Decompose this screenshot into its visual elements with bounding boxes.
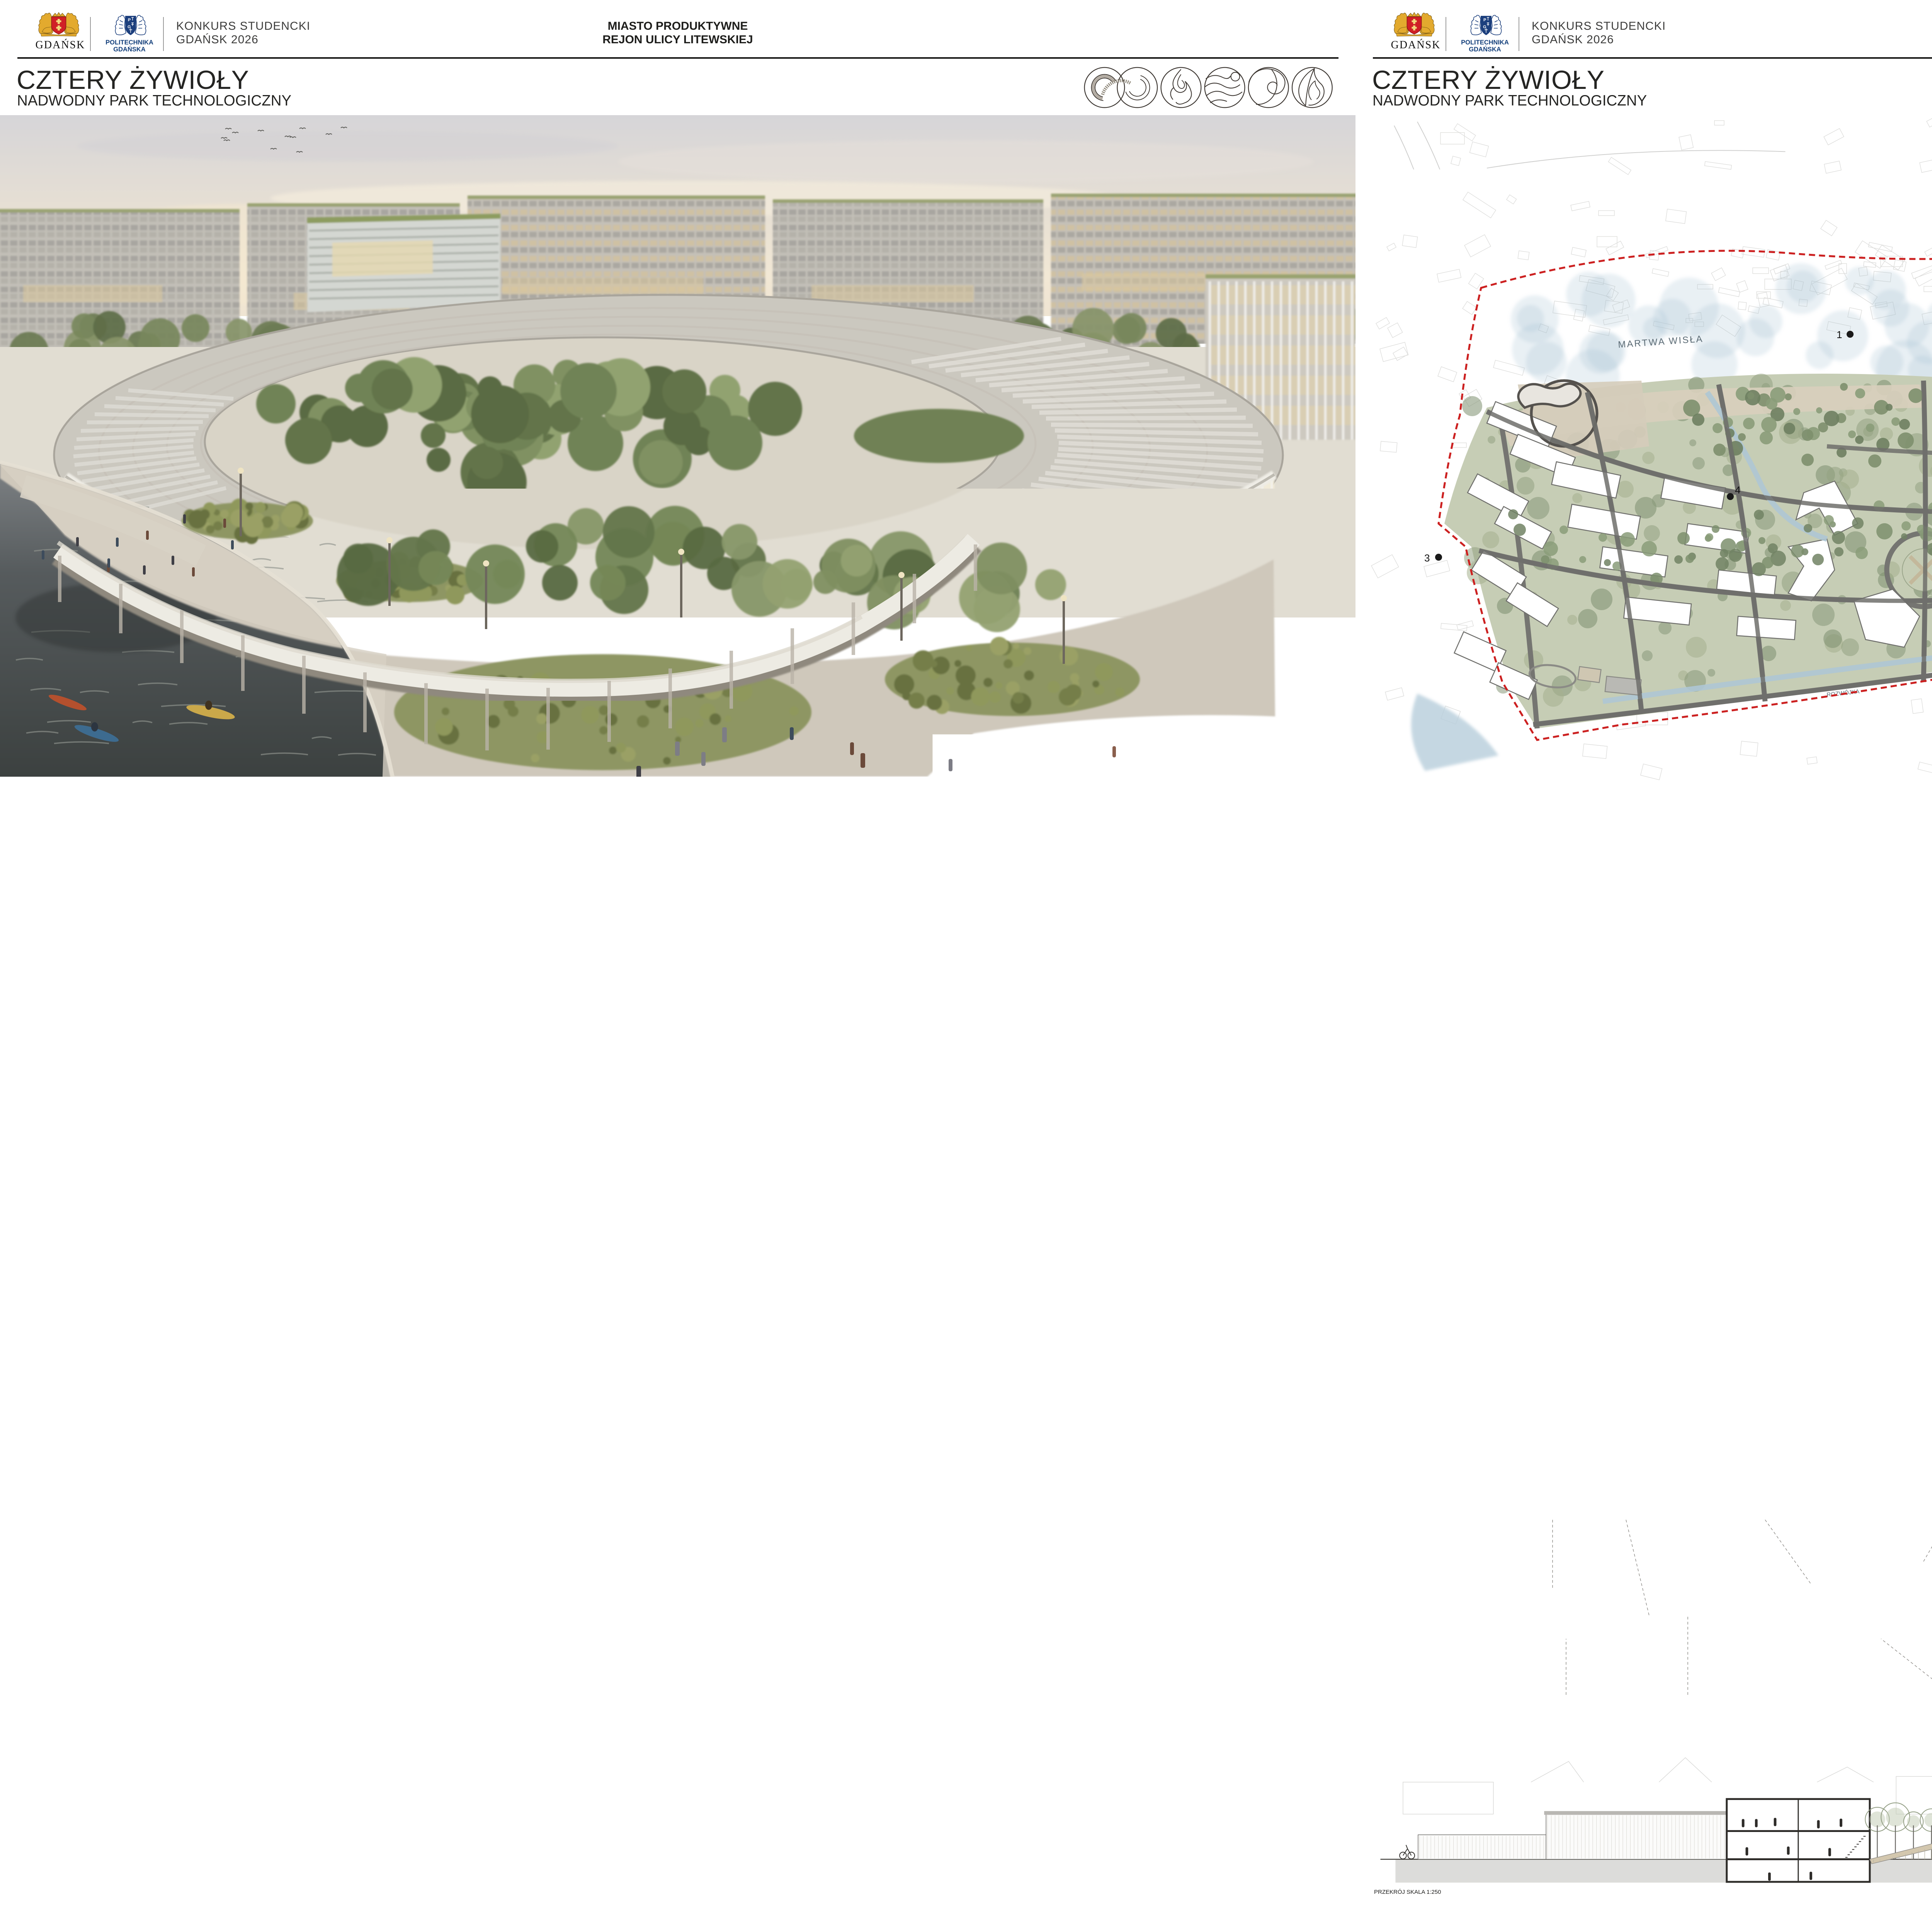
svg-text:PRODUKCYJNE: PRODUKCYJNE — [61, 807, 91, 811]
svg-text:45,39: 45,39 — [923, 1802, 933, 1806]
svg-text:46: 46 — [837, 1883, 841, 1887]
svg-text:monitoring: monitoring — [48, 863, 62, 867]
svg-text:krótkoterminowe: krótkoterminowe — [177, 857, 199, 861]
svg-text:85,68: 85,68 — [813, 1802, 823, 1806]
svg-text:chłodnia: chłodnia — [865, 1876, 880, 1880]
svg-text:11: 11 — [726, 1817, 731, 1821]
svg-text:sala odpoczynku: sala odpoczynku — [755, 1802, 784, 1806]
svg-text:27,67: 27,67 — [923, 1809, 933, 1813]
svg-text:14: 14 — [128, 1380, 134, 1387]
svg-text:G: G — [128, 25, 131, 29]
svg-text:Nazwa strefy: Nazwa strefy — [775, 1735, 798, 1739]
svg-text:zmywalnia: zmywalnia — [865, 1817, 883, 1821]
svg-text:20: 20 — [726, 1883, 731, 1887]
svg-text:badania: badania — [50, 853, 61, 856]
svg-text:wydajności: wydajności — [69, 831, 83, 834]
svg-text:N: N — [1597, 806, 1601, 812]
svg-text:23: 23 — [618, 1380, 625, 1387]
svg-text:Rozdzielnia kelnerska: Rozdzielnia kelnerska — [865, 1809, 903, 1813]
svg-text:G: G — [128, 983, 131, 988]
svg-text:34: 34 — [1005, 1612, 1012, 1619]
svg-text:25: 25 — [837, 1750, 841, 1754]
svg-text:kontrast wobec: kontrast wobec — [1296, 1213, 1325, 1218]
svg-text:10: 10 — [726, 1809, 731, 1813]
svg-text:37: 37 — [837, 1846, 841, 1851]
svg-text:10,17: 10,17 — [923, 1765, 933, 1769]
svg-text:243,53: 243,53 — [813, 1854, 825, 1858]
svg-text:ewolucja wiedzy,: ewolucja wiedzy, — [1294, 1253, 1326, 1257]
svg-text:29: 29 — [788, 1295, 795, 1302]
svg-text:nauka wszystkimi: nauka wszystkimi — [1201, 1139, 1235, 1144]
svg-text:3: 3 — [572, 1604, 575, 1611]
svg-text:laboratorium pokazowe: laboratorium pokazowe — [755, 1787, 795, 1791]
svg-text:127,70: 127,70 — [813, 1765, 825, 1769]
svg-text:6 179,02 m²: 6 179,02 m² — [923, 1905, 944, 1909]
svg-text:ŚWIATŁO: ŚWIATŁO — [1151, 1126, 1175, 1132]
svg-text:regeneracja i: regeneracja i — [180, 868, 197, 871]
svg-text:łazienki: łazienki — [755, 1846, 768, 1851]
svg-text:nauki i: nauki i — [1267, 1163, 1279, 1168]
svg-text:procesów i: procesów i — [1153, 1148, 1173, 1153]
svg-text:18: 18 — [765, 1519, 772, 1526]
svg-text:1: 1 — [421, 1481, 425, 1487]
svg-text:łazienki: łazienki — [865, 1890, 878, 1895]
svg-text:89,32: 89,32 — [813, 1883, 823, 1887]
svg-text:laboratorium pokazowe: laboratorium pokazowe — [755, 1824, 795, 1828]
svg-text:7: 7 — [726, 1787, 729, 1791]
svg-text:17: 17 — [804, 1458, 811, 1464]
svg-text:przystań kajakowa,: przystań kajakowa, — [173, 893, 198, 897]
svg-text:ETER: ETER — [1208, 1200, 1232, 1209]
svg-text:I USŁUGI: I USŁUGI — [180, 847, 196, 852]
svg-text:127,67: 127,67 — [813, 1757, 825, 1762]
svg-text:I FORMA: I FORMA — [1299, 1192, 1322, 1197]
svg-text:39: 39 — [951, 1620, 957, 1626]
svg-text:kuchnia: kuchnia — [865, 1802, 879, 1806]
svg-text:481,41: 481,41 — [923, 1898, 935, 1902]
svg-text:127,75: 127,75 — [813, 1795, 825, 1799]
svg-text:KOMINIKACJA: KOMINIKACJA — [1254, 1126, 1291, 1132]
svg-text:kwintesencja: kwintesencja — [1117, 1251, 1142, 1256]
svg-text:recepcja: recepcja — [755, 1868, 770, 1873]
svg-text:przenikanie: przenikanie — [1152, 1158, 1174, 1163]
svg-text:34: 34 — [837, 1824, 841, 1828]
svg-text:zmian: zmian — [1304, 1263, 1315, 1267]
svg-text:31: 31 — [1005, 1581, 1012, 1588]
svg-text:szatnia pracownicza: szatnia pracownicza — [755, 1898, 790, 1902]
svg-text:16: 16 — [137, 1230, 144, 1236]
svg-text:wystawa czasowa: wystawa czasowa — [755, 1831, 786, 1835]
svg-text:społeczeństwa: społeczeństwa — [1259, 1169, 1287, 1173]
svg-text:4: 4 — [603, 1635, 606, 1642]
svg-text:restauracja: restauracja — [865, 1898, 884, 1902]
svg-text:pokój socjalny: pokój socjalny — [755, 1890, 779, 1895]
svg-text:P: P — [128, 18, 131, 22]
svg-text:prototypów,: prototypów, — [55, 902, 70, 905]
svg-text:32: 32 — [837, 1809, 841, 1813]
svg-text:12: 12 — [726, 1824, 731, 1828]
svg-text:13: 13 — [182, 1411, 189, 1418]
svg-text:G: G — [1483, 25, 1486, 29]
svg-text:127,75: 127,75 — [813, 1817, 825, 1821]
svg-text:35: 35 — [837, 1831, 841, 1835]
svg-text:1: 1 — [1837, 329, 1842, 340]
svg-text:48: 48 — [935, 1597, 942, 1603]
svg-text:Powierzchnia: Powierzchnia — [922, 1735, 945, 1739]
svg-text:laboratorium pokazowe: laboratorium pokazowe — [755, 1817, 795, 1821]
svg-text:laboratorium pokazowe: laboratorium pokazowe — [755, 1795, 795, 1799]
svg-text:4: 4 — [726, 1765, 729, 1769]
svg-text:5: 5 — [367, 1662, 371, 1669]
svg-text:507,69: 507,69 — [813, 1831, 825, 1835]
svg-text:127,74: 127,74 — [813, 1787, 825, 1791]
svg-text:laboratorium pokazowe: laboratorium pokazowe — [755, 1757, 795, 1762]
svg-text:klatka schodowa: klatka schodowa — [865, 1795, 894, 1799]
svg-text:27: 27 — [734, 1295, 741, 1302]
svg-text:usługi lokalne,: usługi lokalne, — [179, 864, 197, 868]
svg-text:128,40: 128,40 — [813, 1824, 825, 1828]
svg-text:pom. socjalne: pom. socjalne — [865, 1839, 889, 1843]
svg-text:P: P — [128, 976, 131, 981]
svg-text:wc + natryski męskie: wc + natryski męskie — [865, 1854, 901, 1858]
svg-text:3: 3 — [1424, 552, 1430, 564]
svg-text:prezentacja: prezentacja — [1262, 1143, 1284, 1148]
svg-text:39: 39 — [837, 1861, 841, 1865]
svg-text:28,86: 28,86 — [813, 1868, 823, 1873]
svg-text:P: P — [1483, 976, 1486, 981]
svg-text:PRODUKTYWNE: PRODUKTYWNE — [100, 874, 145, 881]
svg-text:system wiedzy: system wiedzy — [1115, 1261, 1143, 1266]
svg-text:zakwaterowanie,: zakwaterowanie, — [177, 861, 199, 864]
svg-text:magazyn: magazyn — [755, 1854, 771, 1858]
svg-text:laboratorium pokazowe: laboratorium pokazowe — [755, 1750, 795, 1754]
svg-text:28: 28 — [837, 1772, 841, 1777]
svg-text:8: 8 — [270, 1624, 274, 1630]
svg-text:33: 33 — [974, 1566, 981, 1572]
svg-text:pok. socjalny: pok. socjalny — [865, 1765, 888, 1769]
svg-text:oświągnięć,: oświągnięć, — [1262, 1148, 1284, 1153]
svg-text:INTEGRACJA ŻYWIOŁÓW: INTEGRACJA ŻYWIOŁÓW — [1096, 1271, 1162, 1276]
svg-text:53,62: 53,62 — [923, 1787, 933, 1791]
svg-text:wspinaczkowa,: wspinaczkowa, — [176, 900, 196, 904]
svg-text:technologii,: technologii, — [69, 817, 83, 820]
svg-text:transparentność: transparentność — [1148, 1143, 1179, 1148]
svg-text:14: 14 — [726, 1839, 731, 1843]
svg-text:zaplecze kuchenne: zaplecze kuchenne — [865, 1757, 898, 1762]
svg-text:43: 43 — [916, 1666, 923, 1673]
svg-text:46: 46 — [951, 1682, 957, 1688]
svg-text:30: 30 — [837, 1795, 841, 1799]
svg-text:czterech żywiołów,: czterech żywiołów, — [1111, 1246, 1146, 1251]
svg-text:tłumaczenie: tłumaczenie — [1117, 1196, 1140, 1200]
svg-text:40: 40 — [837, 1868, 841, 1873]
svg-text:6: 6 — [726, 1780, 729, 1784]
svg-text:26: 26 — [723, 1318, 730, 1325]
svg-text:5: 5 — [726, 1772, 729, 1777]
svg-text:19: 19 — [726, 1876, 731, 1880]
svg-text:37: 37 — [981, 1631, 988, 1638]
svg-text:analiza procesów,: analiza procesów, — [44, 860, 67, 863]
svg-text:2: 2 — [553, 1543, 556, 1549]
svg-text:21: 21 — [726, 1890, 731, 1895]
svg-text:handel: handel — [116, 810, 125, 813]
svg-text:hala sportowa: hala sportowa — [177, 907, 195, 911]
svg-text:19: 19 — [750, 1550, 757, 1557]
svg-text:warsztaty: warsztaty — [56, 905, 69, 908]
svg-text:Powierzchnia: Powierzchnia — [812, 1735, 835, 1739]
svg-text:5,35: 5,35 — [923, 1868, 931, 1873]
svg-text:komponentów: komponentów — [111, 820, 129, 823]
svg-text:P: P — [1483, 18, 1486, 22]
svg-text:45: 45 — [850, 1666, 857, 1673]
svg-text:adaptacja i: adaptacja i — [1299, 1243, 1320, 1247]
svg-text:kawiarnia: kawiarnia — [865, 1743, 882, 1747]
svg-text:29: 29 — [837, 1787, 841, 1791]
svg-text:interaktywne,: interaktywne, — [54, 895, 71, 898]
svg-text:9: 9 — [301, 1639, 305, 1646]
svg-text:20: 20 — [703, 1531, 710, 1538]
svg-text:14,87: 14,87 — [923, 1750, 933, 1754]
svg-text:10,82: 10,82 — [923, 1854, 933, 1858]
svg-text:9: 9 — [726, 1802, 729, 1806]
svg-text:195,34: 195,34 — [923, 1743, 935, 1747]
svg-text:4: 4 — [1735, 484, 1740, 496]
svg-text:aktualizacja,: aktualizacja, — [1298, 1248, 1322, 1252]
svg-text:recepcja: recepcja — [755, 1876, 770, 1880]
svg-text:łazienki: łazienki — [755, 1809, 768, 1813]
svg-text:32,73: 32,73 — [923, 1883, 933, 1887]
svg-text:zanieczyszczeń: zanieczyszczeń — [45, 867, 65, 870]
svg-text:mag. prod. sypkie: mag. prod. sypkie — [865, 1868, 896, 1873]
svg-text:13: 13 — [726, 1831, 731, 1835]
svg-text:1: 1 — [726, 1743, 729, 1747]
svg-text:64,81: 64,81 — [813, 1839, 823, 1843]
svg-text:płynna, obła: płynna, obła — [1299, 1203, 1322, 1208]
svg-text:11: 11 — [205, 1519, 211, 1526]
svg-text:MAGAZYNY: MAGAZYNY — [109, 793, 131, 797]
svg-text:18: 18 — [726, 1868, 731, 1873]
svg-text:5,99: 5,99 — [923, 1831, 931, 1835]
svg-text:2: 2 — [726, 1750, 729, 1754]
svg-text:41: 41 — [837, 1876, 841, 1880]
svg-text:środowiskowe,: środowiskowe, — [46, 856, 65, 860]
svg-text:EKSPERYMENTARIUM: EKSPERYMENTARIUM — [43, 915, 82, 919]
svg-text:64,34: 64,34 — [923, 1795, 933, 1799]
svg-text:44,30: 44,30 — [813, 1890, 823, 1895]
svg-text:łazienka pracownicza: łazienka pracownicza — [865, 1772, 902, 1777]
svg-text:36: 36 — [978, 1597, 985, 1603]
svg-text:doświadczenia: doświadczenia — [1114, 1216, 1143, 1220]
svg-text:innowacji,: innowacji, — [158, 820, 171, 824]
svg-text:odpoczynek: odpoczynek — [180, 871, 196, 875]
svg-text:prezentacja: prezentacja — [55, 898, 71, 902]
svg-text:wiedzy, dialog: wiedzy, dialog — [1259, 1158, 1286, 1163]
svg-text:sprawdzanie: sprawdzanie — [68, 827, 84, 831]
svg-text:innowacjami,: innowacjami, — [112, 813, 129, 816]
svg-text:29: 29 — [837, 1780, 841, 1784]
svg-text:ZMYSŁOWE: ZMYSŁOWE — [1202, 1118, 1233, 1123]
svg-text:17: 17 — [726, 1861, 731, 1865]
svg-text:edukacyjne: edukacyjne — [55, 908, 70, 912]
svg-text:sklep: sklep — [755, 1905, 764, 1909]
svg-text:23: 23 — [726, 1905, 731, 1909]
svg-text:Park 4 Żywioły,: Park 4 Żywioły, — [176, 890, 196, 893]
svg-text:28: 28 — [757, 1280, 764, 1286]
svg-text:31,88: 31,88 — [923, 1890, 933, 1895]
svg-text:27: 27 — [837, 1765, 841, 1769]
svg-text:połączenie: połączenie — [1119, 1241, 1139, 1246]
svg-text:szatnia: szatnia — [755, 1883, 767, 1887]
svg-text:44: 44 — [885, 1651, 892, 1657]
svg-text:15: 15 — [726, 1846, 731, 1851]
svg-text:procesów, transfer: procesów, transfer — [1111, 1206, 1146, 1210]
svg-text:mag. na napoje: mag. na napoje — [865, 1861, 892, 1865]
svg-text:LABORATORIA: LABORATORIA — [41, 846, 69, 850]
svg-text:Numer strefy: Numer strefy — [726, 1735, 748, 1739]
svg-text:40,75: 40,75 — [813, 1809, 823, 1813]
svg-text:SPORT I REKREACJA: SPORT I REKREACJA — [167, 913, 205, 918]
svg-text:złożonych: złożonych — [1119, 1201, 1138, 1205]
svg-text:toaleta: toaleta — [865, 1787, 877, 1791]
svg-text:26: 26 — [837, 1757, 841, 1762]
svg-text:Zestawienie powierzchni: Zestawienie powierzchni — [866, 1727, 912, 1732]
svg-text:10,77: 10,77 — [923, 1846, 933, 1851]
svg-text:coworking: coworking — [158, 827, 171, 831]
svg-text:dystrybucja: dystrybucja — [113, 803, 128, 806]
svg-text:gastronomia,: gastronomia, — [180, 854, 196, 857]
svg-text:sieciowanie firm,: sieciowanie firm, — [154, 824, 175, 827]
svg-text:12: 12 — [174, 1504, 181, 1510]
svg-text:90,22: 90,22 — [813, 1772, 823, 1777]
svg-text:Z MIASTEM: Z MIASTEM — [1258, 1132, 1287, 1138]
svg-text:16: 16 — [726, 1854, 731, 1858]
svg-text:21: 21 — [676, 1585, 683, 1592]
svg-text:6,42: 6,42 — [923, 1824, 931, 1828]
svg-text:Nazwa strefy: Nazwa strefy — [885, 1735, 908, 1739]
svg-text:ścieżki rowerowe,: ścieżki rowerowe, — [174, 904, 197, 907]
svg-text:9,90: 9,90 — [923, 1772, 931, 1777]
svg-text:rozwiązań,: rozwiązań, — [69, 824, 83, 827]
svg-text:logistyka,: logistyka, — [114, 799, 126, 803]
svg-text:sala odpoczynku: sala odpoczynku — [755, 1772, 784, 1777]
svg-text:24: 24 — [665, 1357, 672, 1364]
svg-text:ścianka: ścianka — [181, 897, 191, 900]
svg-text:restauracja: restauracja — [865, 1780, 884, 1784]
svg-text:wystawa główna: wystawa główna — [755, 1743, 783, 1747]
svg-text:36: 36 — [837, 1839, 841, 1843]
svg-text:37,13: 37,13 — [813, 1876, 823, 1880]
svg-text:COWORKING: COWORKING — [152, 807, 177, 811]
svg-text:15: 15 — [128, 1357, 134, 1364]
svg-text:54,86: 54,86 — [813, 1846, 823, 1851]
svg-text:6: 6 — [410, 1674, 413, 1681]
svg-text:wc + natryski damskie: wc + natryski damskie — [865, 1846, 903, 1851]
svg-text:zmysłami: zmysłami — [1209, 1144, 1227, 1149]
svg-text:geometria bryły,: geometria bryły, — [1296, 1208, 1325, 1213]
svg-text:nauki i: nauki i — [1122, 1211, 1134, 1215]
svg-text:40: 40 — [920, 1612, 927, 1619]
svg-text:Numer strefy: Numer strefy — [836, 1735, 858, 1739]
svg-text:36,27: 36,27 — [813, 1780, 823, 1784]
svg-text:22: 22 — [657, 1558, 664, 1565]
svg-text:Zestawienie powierzchni: Zestawienie powierzchni — [756, 1727, 802, 1732]
svg-text:24: 24 — [837, 1743, 841, 1747]
svg-text:ekspozycje: ekspozycje — [56, 891, 70, 895]
svg-text:CZAS I ROZWÓJ: CZAS I ROZWÓJ — [1289, 1272, 1331, 1278]
svg-text:klatka schodowa: klatka schodowa — [865, 1883, 894, 1887]
svg-text:122,66: 122,66 — [813, 1905, 825, 1909]
svg-text:proces ciągłych: proces ciągłych — [1295, 1258, 1325, 1262]
svg-text:17: 17 — [475, 1419, 482, 1425]
svg-text:MIASTO: MIASTO — [111, 867, 133, 874]
svg-text:światła: światła — [1156, 1163, 1170, 1168]
svg-text:architektury,: architektury, — [1151, 1153, 1174, 1158]
svg-text:1 014,95: 1 014,95 — [813, 1861, 828, 1865]
svg-text:48: 48 — [927, 1488, 934, 1495]
svg-text:optymalizacja: optymalizacja — [67, 820, 85, 824]
svg-text:41: 41 — [889, 1620, 896, 1626]
svg-text:1 689,19: 1 689,19 — [813, 1743, 828, 1747]
svg-text:10: 10 — [236, 1612, 243, 1619]
svg-text:inkubacja: inkubacja — [158, 817, 171, 820]
svg-text:11,40: 11,40 — [923, 1876, 933, 1880]
svg-text:0,01: 0,01 — [923, 1780, 931, 1784]
svg-text:21,26: 21,26 — [923, 1757, 933, 1762]
svg-text:procesów, wspólny: procesów, wspólny — [1111, 1256, 1147, 1261]
svg-text:przemysłowej: przemysłowej — [1298, 1223, 1324, 1228]
svg-text:laboratorium pokazowe: laboratorium pokazowe — [755, 1765, 795, 1769]
svg-text:7: 7 — [332, 1651, 336, 1657]
svg-text:dostępność: dostępność — [1262, 1153, 1284, 1158]
svg-text:obieralnia: obieralnia — [865, 1824, 882, 1828]
svg-text:33: 33 — [837, 1817, 841, 1821]
svg-text:składowanie: składowanie — [112, 816, 128, 820]
svg-text:31: 31 — [837, 1802, 841, 1806]
svg-text:klatka schodowa: klatka schodowa — [755, 1780, 784, 1784]
svg-text:127,62: 127,62 — [813, 1750, 825, 1754]
svg-text:5,35: 5,35 — [923, 1861, 931, 1865]
svg-text:doświadczenie,: doświadczenie, — [1203, 1134, 1232, 1139]
svg-text:30: 30 — [819, 1326, 826, 1333]
svg-text:10,38: 10,38 — [923, 1817, 933, 1821]
svg-text:3: 3 — [726, 1757, 729, 1762]
svg-text:prototympowanie: prototympowanie — [65, 813, 87, 817]
svg-text:MEDIUM POZNANIA: MEDIUM POZNANIA — [1103, 1184, 1154, 1190]
svg-text:48: 48 — [837, 1898, 841, 1902]
svg-text:25: 25 — [696, 1334, 702, 1340]
svg-text:surowej struktury: surowej struktury — [1294, 1218, 1327, 1223]
svg-text:DOŚWIADCZENIA: DOŚWIADCZENIA — [1195, 1112, 1241, 1118]
svg-text:mag. warzyw: mag. warzyw — [865, 1831, 888, 1835]
svg-text:8: 8 — [726, 1795, 729, 1799]
svg-text:bar: bar — [865, 1750, 871, 1754]
svg-text:biura startapów,: biura startapów, — [154, 813, 175, 817]
svg-text:18,87: 18,87 — [923, 1839, 933, 1843]
svg-text:17: 17 — [715, 1431, 722, 1437]
svg-text:47: 47 — [837, 1890, 841, 1895]
svg-text:interdyscyplinarny: interdyscyplinarny — [153, 831, 176, 834]
svg-text:NIEMATERIALNOŚĆ: NIEMATERIALNOŚĆ — [1285, 1186, 1337, 1192]
svg-text:strefa wejściowa: strefa wejściowa — [755, 1861, 784, 1865]
svg-text:38: 38 — [837, 1854, 841, 1858]
svg-text:G: G — [1483, 983, 1486, 988]
svg-text:I PRZEPŁYW: I PRZEPŁYW — [1147, 1132, 1180, 1138]
svg-text:22: 22 — [726, 1898, 731, 1902]
svg-text:klatka schodowa: klatka schodowa — [755, 1839, 784, 1843]
svg-text:60,23: 60,23 — [813, 1898, 823, 1902]
svg-text:poznanie przez: poznanie przez — [1204, 1129, 1233, 1134]
svg-text:technologii,: technologii, — [113, 806, 128, 810]
